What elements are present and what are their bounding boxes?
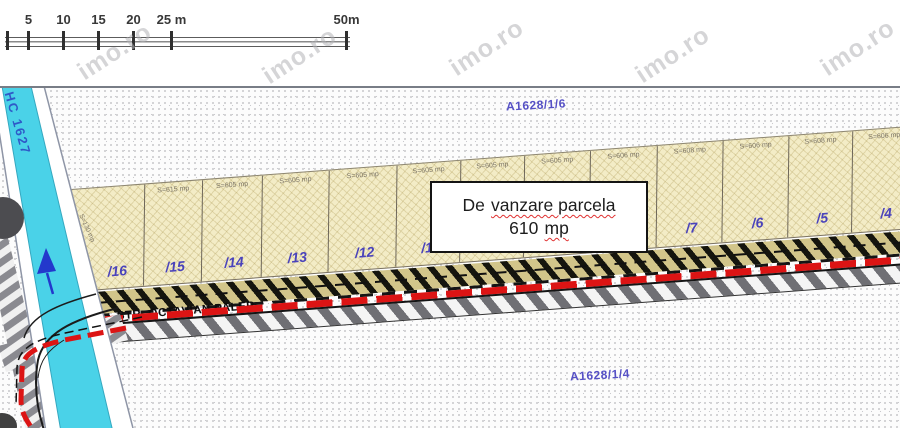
parcel-area-label: S=605 mp <box>216 181 249 190</box>
field-label-top: A1628/1/6 <box>506 96 567 113</box>
parcel-area-label: S=606 mp <box>739 141 772 150</box>
parcel-number: /6 <box>751 214 764 231</box>
sale-box-title: Devanzare parcela <box>462 195 615 216</box>
parcel-boundary <box>721 141 723 242</box>
sale-area-unit: mp <box>545 218 569 238</box>
scale-tick <box>27 31 30 50</box>
scale-tick-label: 15 <box>91 12 105 27</box>
flow-arrow-icon <box>37 248 56 274</box>
parcel-area-label: S=605 mp <box>412 166 445 175</box>
parcel-number: /12 <box>354 243 375 260</box>
parcel-number: /15 <box>165 258 186 275</box>
parcel-boundary <box>143 185 145 286</box>
parcel-boundary <box>851 131 853 232</box>
parcel-area-label: S=608 mp <box>804 136 837 145</box>
scale-tick-label: 10 <box>56 12 70 27</box>
flow-arrow-stem <box>47 273 53 294</box>
road-edge-curve <box>38 340 64 378</box>
parcel-area-label: S=606 mp <box>607 151 640 160</box>
sale-prefix: De <box>462 195 484 215</box>
parcel-area-label: S=606 mp <box>868 132 900 141</box>
field-label-bottom: A1628/1/4 <box>570 366 631 383</box>
cadastral-plan-screenshot: 510152025 m50m imo.ro imo.ro imo.ro imo.… <box>0 0 900 428</box>
parcel-number: /5 <box>816 209 829 226</box>
parcel-boundary <box>327 171 329 272</box>
parcel-number: /4 <box>880 205 893 222</box>
parcel-area-label: S=605 mp <box>347 171 380 180</box>
sale-box-area: 610mp <box>509 218 569 239</box>
dark-circle-landmark <box>0 197 24 239</box>
road-edge-curve <box>24 294 96 338</box>
parcel-number: /13 <box>287 249 308 266</box>
scale-tick <box>62 31 65 50</box>
scale-tick-label: 5 <box>25 12 32 27</box>
parcel-boundary <box>656 146 658 247</box>
parcel-boundary <box>787 136 789 237</box>
parcel-area-label: S=605 mp <box>279 176 312 185</box>
canal-label: HC 1627 <box>2 90 34 157</box>
parcel-number: /7 <box>685 219 698 236</box>
sale-annotation-box: Devanzare parcela 610mp <box>430 181 648 253</box>
parcel-area-label: S=615 mp <box>157 185 190 194</box>
parcel-area-label: S=605 mp <box>541 156 574 165</box>
parcel-area-label: S=608 mp <box>674 146 707 155</box>
parcel-number: /16 <box>107 262 128 279</box>
parcel-boundary <box>395 166 397 267</box>
parcel-area-label: S=605 mp <box>476 161 509 170</box>
dark-blob-bottom-left <box>0 413 17 428</box>
parcel-boundary <box>201 180 203 281</box>
scale-tick <box>170 31 173 50</box>
west-road-hatched-band <box>0 230 56 428</box>
sale-area-value: 610 <box>509 218 538 238</box>
parcel-area-label: S=130 mp <box>77 213 96 243</box>
sale-title-underlined: vanzare parcela <box>491 195 616 215</box>
scale-tick <box>6 31 9 50</box>
scale-tick-label: 50m <box>333 12 359 27</box>
parcel-number: /14 <box>224 253 245 270</box>
scale-tick <box>345 31 348 50</box>
scale-tick-label: 25 m <box>157 12 187 27</box>
parcel-boundary <box>261 176 263 277</box>
map-area: A1628/1/6 A1628/1/4 S=130 mp/16S=615 mp/… <box>0 86 900 428</box>
